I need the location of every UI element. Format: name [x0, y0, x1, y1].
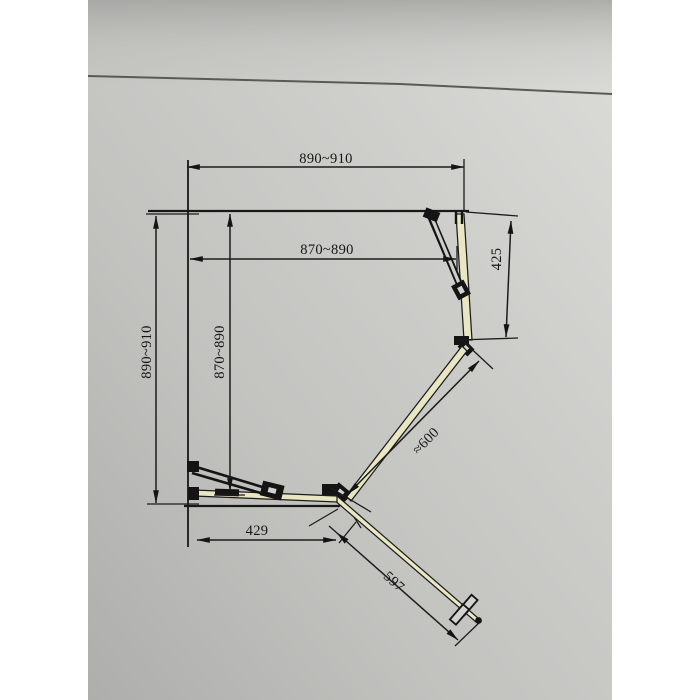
screenshot-canvas: 890~910 870~890 890~910 870~890 425 ≈600: [0, 0, 700, 700]
photo-paper-background: [88, 0, 612, 700]
dim-label-outer-width: 890~910: [299, 151, 352, 167]
photo-top-shading: [88, 0, 612, 90]
dim-label-inner-depth: 870~890: [212, 325, 228, 378]
dim-label-outer-depth: 890~910: [139, 325, 155, 378]
dim-label-right-panel: 425: [489, 248, 505, 271]
dim-label-inner-width: 870~890: [300, 242, 353, 258]
shower-enclosure-technical-drawing-photo: 890~910 870~890 890~910 870~890 425 ≈600: [0, 0, 700, 700]
glass-end-cap: [188, 487, 199, 500]
dim-label-bottom-panel: 429: [246, 523, 269, 539]
